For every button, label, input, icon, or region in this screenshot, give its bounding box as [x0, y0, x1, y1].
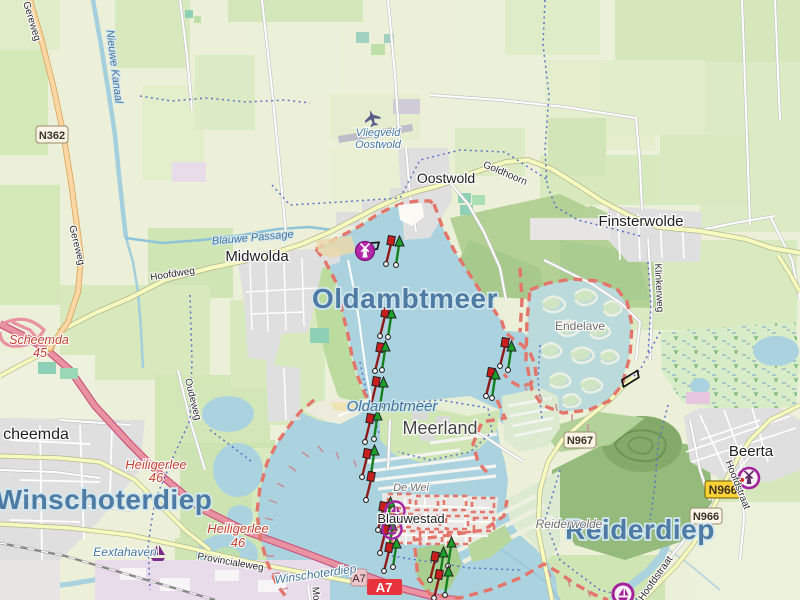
svg-text:Oldambtmeer: Oldambtmeer [347, 398, 439, 415]
svg-text:Winschoterdiep: Winschoterdiep [0, 484, 212, 515]
svg-text:Oostwold: Oostwold [355, 139, 402, 151]
svg-text:cheemda: cheemda [3, 426, 69, 443]
svg-text:N967: N967 [567, 435, 593, 447]
svg-text:Beerta: Beerta [729, 443, 774, 460]
svg-text:A7: A7 [376, 580, 393, 595]
svg-text:Heiligerlee: Heiligerlee [207, 521, 268, 536]
svg-text:Midwolda: Midwolda [225, 248, 289, 265]
svg-text:De Wei: De Wei [393, 482, 429, 494]
svg-text:Blauwestad: Blauwestad [377, 511, 444, 526]
svg-text:Vliegveld: Vliegveld [356, 127, 402, 139]
svg-text:46: 46 [231, 535, 246, 550]
svg-text:Eextahaven: Eextahaven [93, 545, 157, 559]
svg-text:Oldambtmeer: Oldambtmeer [312, 283, 498, 314]
svg-text:45: 45 [33, 346, 47, 360]
svg-text:46: 46 [149, 470, 164, 485]
svg-text:Mol: Mol [309, 586, 321, 600]
svg-text:Endelave: Endelave [555, 319, 605, 333]
svg-text:Scheemda: Scheemda [9, 333, 69, 347]
svg-text:N362: N362 [39, 130, 65, 142]
svg-text:Meerland: Meerland [402, 418, 477, 438]
svg-text:Oostwold: Oostwold [417, 170, 475, 186]
svg-text:Finsterwolde: Finsterwolde [598, 213, 683, 230]
svg-text:Reiderwolde: Reiderwolde [536, 517, 603, 531]
